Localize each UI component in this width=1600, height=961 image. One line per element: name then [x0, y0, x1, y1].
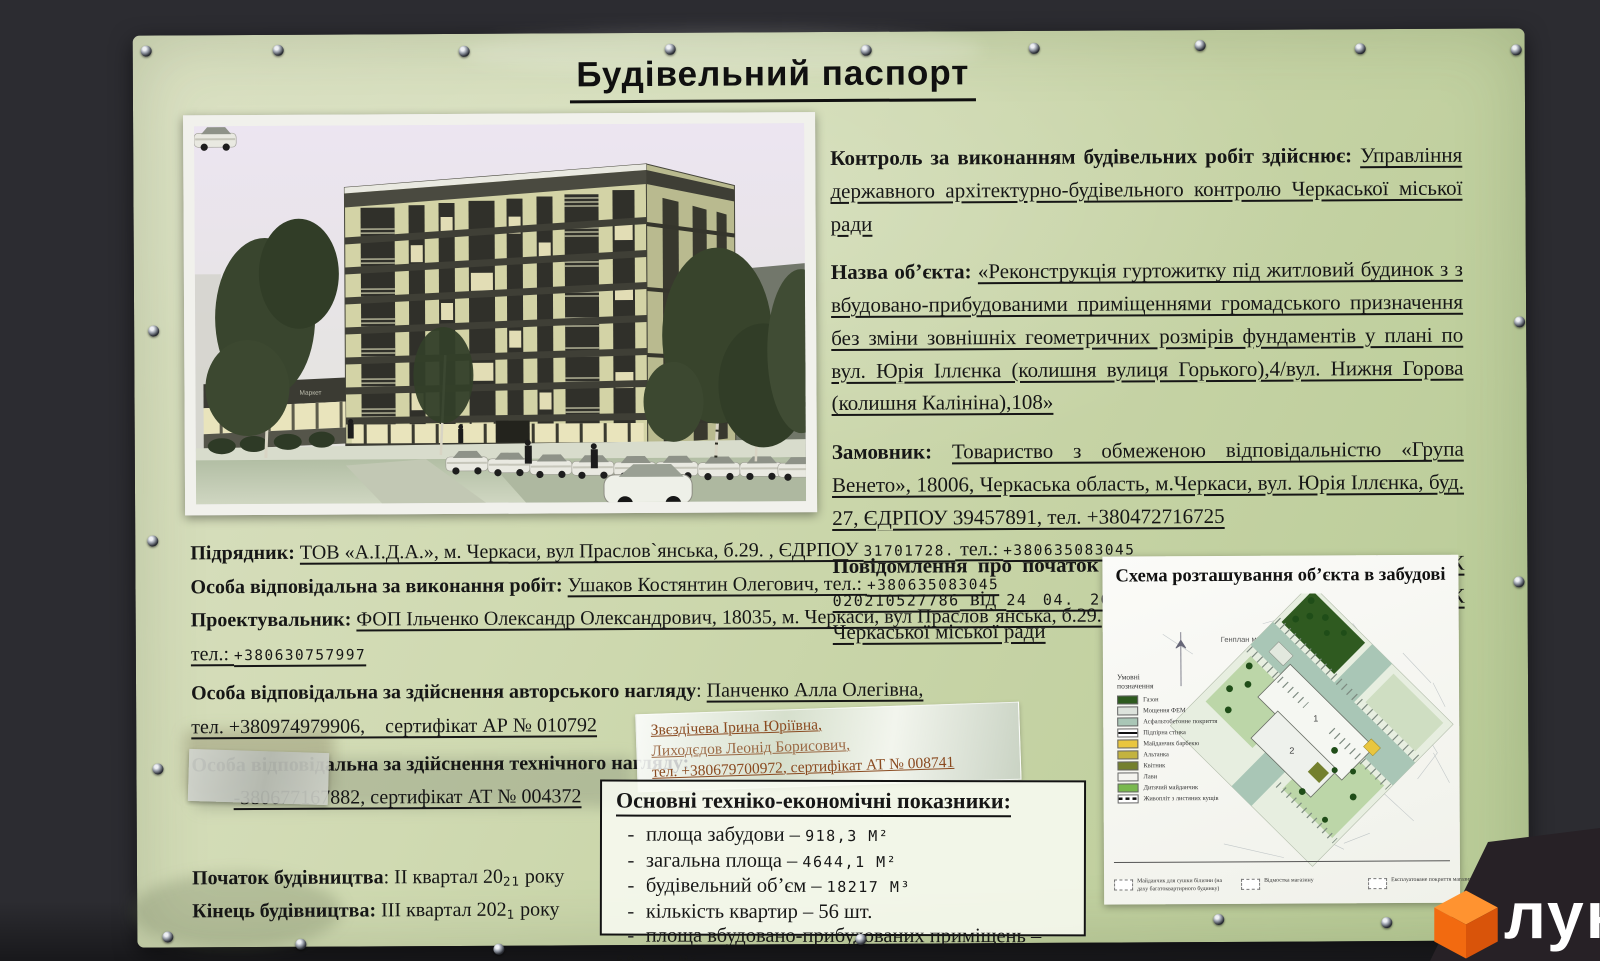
mounting-screw — [162, 931, 173, 942]
legend-chip — [1117, 717, 1138, 726]
indicator-item: -загальна площа – 4644,1 М² — [616, 848, 1070, 874]
indicator-item: -будівельний об’єм – 18217 М³ — [616, 874, 1070, 900]
legend-row: Асфальтобетонне покриття — [1117, 715, 1267, 727]
legend-label: Асфальтобетонне покриття — [1143, 718, 1217, 725]
info-paragraph: Контроль за виконанням будівельних робіт… — [830, 139, 1463, 241]
mounting-screw — [273, 45, 284, 56]
legend-chip — [1117, 695, 1138, 704]
building-rendering: Маркет Маркет — [194, 123, 806, 504]
legend-bottom-item: Майданчик для сушки білизни (на даху баг… — [1114, 878, 1233, 894]
mounting-screw — [147, 536, 158, 547]
info-paragraph: Замовник: Товариство з обмеженою відпові… — [832, 433, 1465, 535]
lun-cube-icon — [1432, 888, 1500, 961]
legend-chip — [1114, 879, 1133, 890]
mounting-screw — [1381, 917, 1392, 928]
mounting-screw — [855, 934, 866, 945]
legend-row: Майданчик барбекю — [1117, 737, 1267, 749]
legend-label: Дитячий майданчик — [1144, 784, 1199, 791]
legend-row: Лави — [1117, 770, 1267, 782]
legend-chip — [1117, 739, 1138, 748]
legend-row: Дитячий майданчик — [1118, 781, 1268, 793]
info-line: Особа відповідальна за виконання робіт: … — [190, 571, 1235, 598]
legend-row: Мощення ФЕМ — [1117, 704, 1267, 716]
legend-chip — [1117, 761, 1138, 770]
mounting-screw — [141, 46, 152, 57]
mounting-screw — [459, 46, 470, 57]
sign-title-wrap: Будівельний паспорт — [273, 52, 1273, 105]
legend-label: Мощення ФЕМ — [1143, 707, 1186, 714]
building-1-label: 1 — [1313, 713, 1318, 723]
mounting-screw — [148, 326, 159, 337]
map-legend: Умовні позначення ГазонМощення ФЕМАсфаль… — [1117, 672, 1268, 805]
legend-row: Альтанка — [1117, 748, 1267, 760]
legend-chip — [1117, 772, 1138, 781]
siteplan-panel: Схема розташування об’єкта в забудові Ге… — [1102, 555, 1460, 905]
legend-label: Альтанка — [1143, 751, 1168, 758]
mounting-screw — [152, 763, 163, 774]
legend-label: Майданчик для сушки білизни (на даху баг… — [1137, 878, 1233, 894]
legend-label: Живопліт з листяних кущів — [1144, 795, 1219, 802]
legend-label: Газон — [1143, 696, 1159, 703]
mounting-screw — [1514, 316, 1525, 327]
mounting-screw — [1513, 576, 1524, 587]
photo-of-construction-passport-board: Будівельний паспорт — [0, 0, 1600, 961]
legend-label: Відмостка магазину — [1264, 877, 1360, 885]
legend-label: Квітник — [1143, 762, 1165, 769]
siteplan-title: Схема розташування об’єкта в забудові — [1110, 565, 1450, 588]
info-line: Підрядник: ТОВ «А.І.Д.А.», м. Черкаси, в… — [190, 538, 1235, 565]
legend-row: Газон — [1117, 693, 1267, 705]
sign-title: Будівельний паспорт — [570, 53, 975, 103]
lun-brand-text: лун — [1504, 882, 1600, 948]
mounting-screw — [1195, 40, 1206, 51]
legend-chip — [1368, 878, 1387, 889]
indicators-box: Основні техніко-економічні показники: -п… — [600, 780, 1086, 937]
mounting-screw — [861, 45, 872, 56]
building-rendering-photo: Маркет Маркет — [183, 112, 817, 515]
building-2-label: 2 — [1289, 746, 1294, 756]
indicators-list: -площа забудови – 918,3 М²-загальна площ… — [616, 823, 1070, 961]
mounting-screw — [1029, 43, 1040, 54]
lun-watermark: лун — [1432, 888, 1600, 961]
mounting-screw — [1511, 44, 1522, 55]
legend-chip — [1117, 728, 1138, 737]
legend-chip — [1118, 794, 1139, 803]
mounting-screw — [1355, 43, 1366, 54]
legend-title: Умовні позначення — [1117, 672, 1175, 691]
info-line: Особа відповідальна за здійснення авторс… — [191, 678, 1236, 705]
mounting-screw — [493, 944, 504, 955]
blank-tape-patch — [188, 749, 329, 805]
indicators-title: Основні техніко-економічні показники: — [616, 788, 1011, 818]
legend-bottom-item: Відмостка магазину — [1241, 877, 1360, 893]
legend-label: Лави — [1143, 773, 1157, 780]
info-paragraph: Назва об’єкта: «Реконструкція гуртожитку… — [831, 253, 1464, 420]
indicator-item: -площа забудови – 918,3 М² — [616, 823, 1070, 849]
construction-passport-sign: Будівельний паспорт — [133, 28, 1530, 947]
legend-row: Живопліт з листяних кущів — [1118, 792, 1268, 804]
mounting-screw — [295, 939, 306, 950]
mounting-screw — [665, 44, 676, 55]
legend-row: Підпірна стінка — [1117, 726, 1267, 738]
legend-label: Майданчик барбекю — [1143, 740, 1199, 747]
indicator-item: -площа вбудовано-прибудованих приміщень … — [616, 924, 1070, 961]
legend-chip — [1117, 706, 1138, 715]
info-line: тел.: +380630757997 — [191, 639, 1236, 666]
legend-chip — [1118, 783, 1139, 792]
mounting-screw — [1213, 914, 1224, 925]
legend-row: Квітник — [1117, 759, 1267, 771]
info-line: Проектувальник: ФОП Ільченко Олександр О… — [191, 605, 1236, 632]
legend-chip — [1241, 879, 1260, 890]
indicator-item: -кількість квартир – 56 шт. — [616, 899, 1070, 924]
legend-chip — [1117, 750, 1138, 759]
legend-label: Підпірна стінка — [1143, 729, 1186, 736]
market-sign-text-2: Маркет — [299, 390, 321, 397]
map-legend-bottom: Майданчик для сушки білизни (на даху баг… — [1114, 877, 1454, 894]
